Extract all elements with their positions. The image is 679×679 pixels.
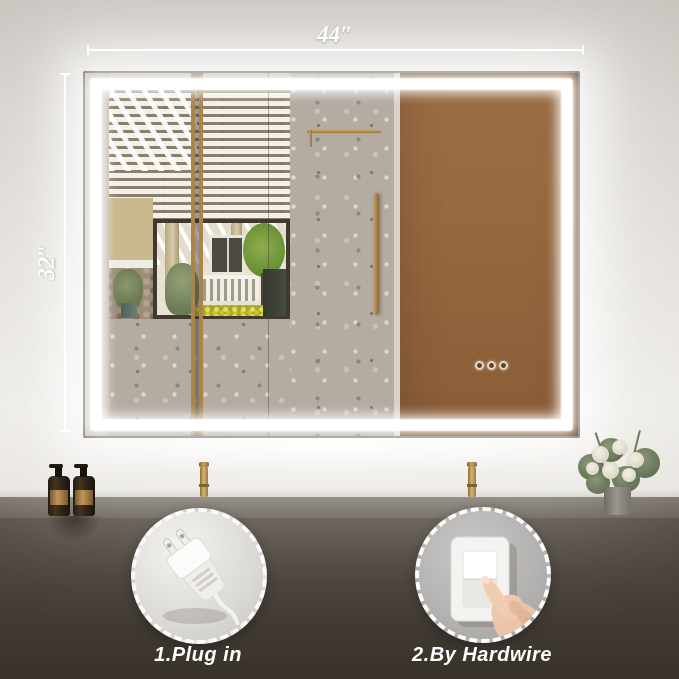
faucet	[468, 466, 476, 497]
led-mirror	[83, 71, 580, 438]
soap-bottle	[73, 476, 95, 516]
instruction-label-plug: 1.Plug in	[128, 644, 268, 667]
led-light-ring	[90, 78, 573, 431]
wall-switch-icon	[419, 511, 547, 639]
width-dimension-line	[87, 49, 584, 51]
width-dimension-label: 44″	[298, 22, 372, 48]
soap-bottle	[48, 476, 70, 516]
product-image: 44″ 32″	[0, 0, 679, 679]
counter-front	[0, 518, 679, 679]
height-dimension-label: 32″	[12, 236, 82, 288]
faucet	[200, 466, 208, 497]
instruction-circle-switch	[415, 507, 551, 643]
instruction-label-hardwire: 2.By Hardwire	[396, 644, 568, 667]
led-underglow	[55, 434, 605, 490]
flower-vase	[604, 487, 631, 515]
power-plug-icon	[135, 512, 263, 640]
bottle-shadow	[46, 516, 102, 542]
instruction-circle-plug	[131, 508, 267, 644]
